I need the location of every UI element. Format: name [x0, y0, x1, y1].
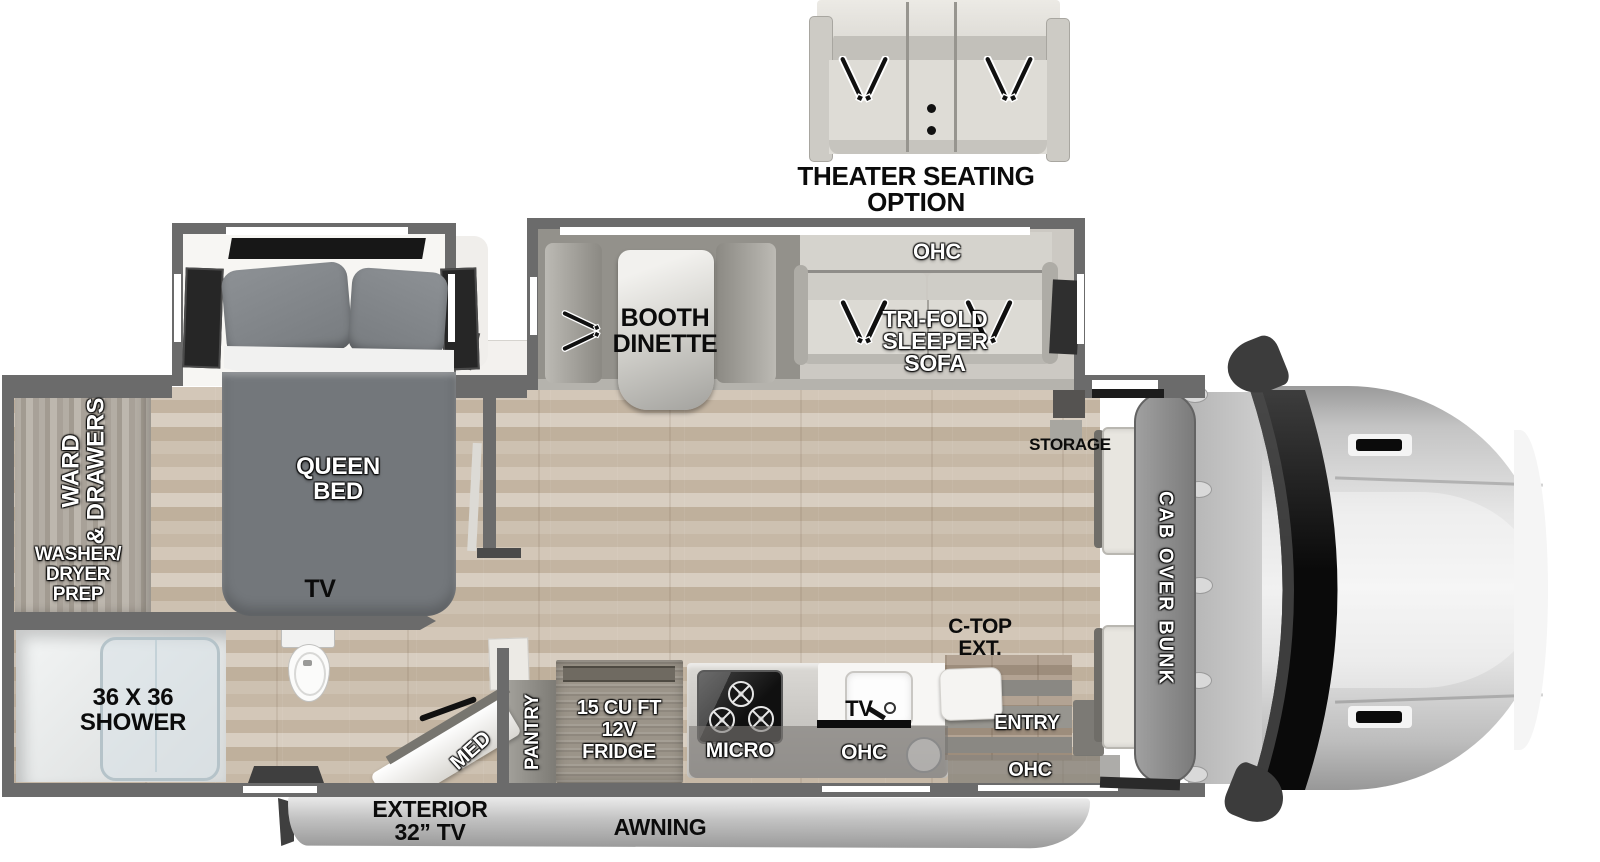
- kitchen-tv-bar: [817, 720, 911, 728]
- ctop-label: C-TOP EXT.: [930, 616, 1030, 660]
- exterior-tv-label-line1: EXTERIOR: [355, 798, 505, 821]
- kitchen-ohc-label: OHC: [831, 742, 897, 764]
- rv-floorplan: THEATER SEATING OPTION QUEEN BED BOOTH D…: [0, 0, 1600, 862]
- shower-label-line2: SHOWER: [48, 711, 218, 736]
- entry-ohc-label: OHC: [1000, 760, 1060, 781]
- seatbelt-icon: [981, 56, 1037, 104]
- theater-dot: [927, 126, 936, 135]
- washer-label-line3: PREP: [18, 585, 138, 605]
- bedroom-divider-wall: [483, 386, 496, 558]
- queen-bed-label: QUEEN BED: [268, 455, 408, 505]
- seatbelt-icon: [836, 56, 892, 104]
- living-slideout-window-slot: [560, 227, 1030, 235]
- left-wall: [2, 375, 14, 795]
- storage-box-dark: [1053, 390, 1085, 418]
- bed-window-slot-left: [174, 274, 181, 342]
- pantry-label: PANTRY: [522, 694, 544, 770]
- bed-slideout-window-slot: [226, 227, 408, 235]
- theater-seating-label-line1: THEATER SEATING: [785, 163, 1047, 189]
- kitchen-tv-label: TV: [832, 698, 886, 721]
- awning-label: AWNING: [595, 816, 725, 840]
- living-slideout-window-slot-left: [530, 277, 537, 335]
- washer-label-line1: WASHER/: [18, 545, 138, 565]
- door-handle-icon: [1356, 439, 1402, 451]
- bottom-wall-window-slot: [822, 786, 930, 792]
- shower-label: 36 X 36 SHOWER: [48, 686, 218, 736]
- trifold-sofa-label-line3: SOFA: [853, 352, 1017, 374]
- theater-seating-label: THEATER SEATING OPTION: [785, 163, 1047, 215]
- trifold-sofa-label-line2: SLEEPER: [853, 330, 1017, 352]
- toilet-flush: [303, 660, 312, 666]
- toilet: [281, 626, 333, 702]
- booth-dinette-label-line1: BOOTH: [588, 305, 742, 331]
- shower-label-line1: 36 X 36: [48, 686, 218, 711]
- round-sink: [906, 737, 942, 773]
- theater-seam: [954, 2, 957, 152]
- cab-over-bunk-label: CAB OVER BUNK: [1154, 491, 1177, 686]
- bath-pantry-wall: [497, 648, 509, 785]
- sofa-armrest-left: [794, 265, 808, 365]
- ctop-label-line1: C-TOP: [930, 616, 1030, 638]
- toilet-seat: [294, 652, 326, 696]
- theater-seating-label-line2: OPTION: [785, 189, 1047, 215]
- entry-label: ENTRY: [985, 713, 1069, 734]
- pantry-label-wrap: PANTRY: [509, 680, 556, 783]
- dash-corner-top: [1092, 389, 1164, 398]
- top-wall-left: [8, 375, 172, 398]
- fridge-label: 15 CU FT 12V FRIDGE: [552, 697, 686, 763]
- exterior-tv-label-line2: 32” TV: [355, 821, 505, 844]
- theater-seat-front: [829, 140, 1047, 154]
- floor-register: [248, 766, 324, 783]
- divider-end-cap: [477, 548, 521, 558]
- ctop-label-line2: EXT.: [930, 638, 1030, 660]
- bed-headboard-window: [228, 238, 426, 259]
- ward-drawers-label: WARD & DRAWERS: [58, 398, 108, 545]
- bedroom-tv-label: TV: [285, 576, 355, 602]
- fridge-top-band: [563, 666, 675, 682]
- top-wall-mid: [456, 375, 527, 398]
- queen-bed-label-line1: QUEEN: [268, 455, 408, 480]
- cab-over-bunk-bar: CAB OVER BUNK: [1134, 392, 1196, 784]
- front-bumper: [1514, 430, 1548, 750]
- theater-dot: [927, 104, 936, 113]
- sofa-window-slot: [1077, 274, 1084, 344]
- ward-label-line2: & DRAWERS: [83, 398, 108, 545]
- fridge-label-line2: 12V: [552, 719, 686, 741]
- exterior-tv-label: EXTERIOR 32” TV: [355, 798, 505, 844]
- queen-bed-label-line2: BED: [268, 480, 408, 505]
- kitchen-tv-knob-icon: [884, 702, 896, 714]
- theater-seam: [906, 2, 909, 152]
- bottom-wall-window-slot: [243, 786, 317, 793]
- bed-window-slot-right: [448, 274, 455, 342]
- booth-dinette-label-line2: DINETTE: [588, 331, 742, 357]
- fridge-label-line3: FRIDGE: [552, 741, 686, 763]
- booth-dinette-label: BOOTH DINETTE: [588, 305, 742, 357]
- bed-pillow: [347, 267, 449, 359]
- ward-label-line1: WARD: [58, 398, 83, 545]
- theater-arm-right: [1046, 18, 1070, 162]
- washer-label-line2: DRYER: [18, 565, 138, 585]
- bed-window-left: [182, 267, 223, 368]
- trifold-sofa-label-line1: TRI-FOLD: [853, 308, 1017, 330]
- top-wall-window-slot: [1092, 380, 1158, 389]
- door-handle-icon: [1356, 711, 1402, 723]
- sofa-ohc-label: OHC: [903, 241, 971, 264]
- washer-dryer-label: WASHER/ DRYER PREP: [18, 545, 138, 605]
- fridge-label-line1: 15 CU FT: [552, 697, 686, 719]
- storage-label: STORAGE: [1028, 436, 1112, 454]
- ward-drawers-label-wrap: WARD & DRAWERS: [15, 398, 151, 544]
- bottom-wall-window-slot: [978, 785, 1118, 791]
- entry-step: [945, 737, 1072, 753]
- micro-label: MICRO: [698, 740, 782, 762]
- bed-pillow: [220, 261, 353, 360]
- trifold-sofa-label: TRI-FOLD SLEEPER SOFA: [853, 308, 1017, 374]
